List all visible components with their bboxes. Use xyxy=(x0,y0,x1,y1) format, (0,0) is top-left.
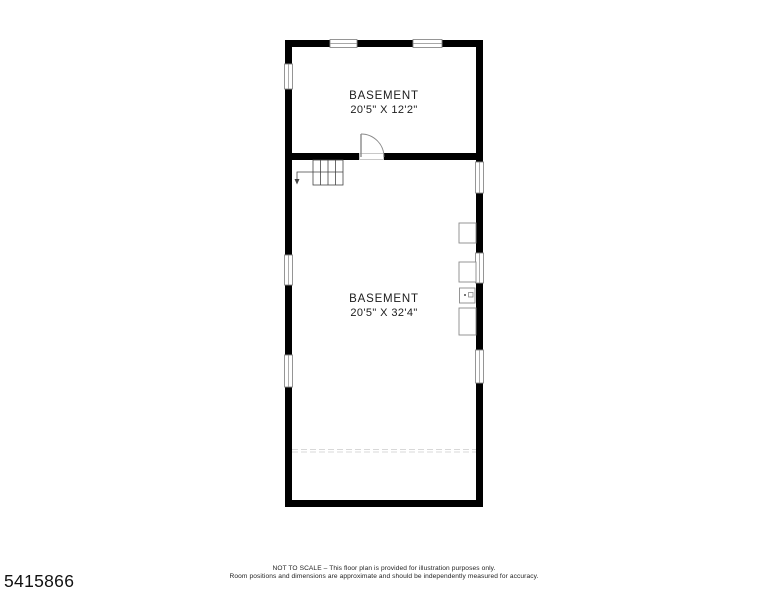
window-icon xyxy=(330,40,357,48)
disclaimer-line-1: NOT TO SCALE – This floor plan is provid… xyxy=(0,565,768,573)
window-icon xyxy=(285,255,293,285)
window-icon xyxy=(413,40,442,48)
window-icon xyxy=(476,350,484,383)
top-wall xyxy=(285,40,483,47)
room-dimensions-basement-upper: 20'5" X 12'2" xyxy=(285,104,483,116)
bottom-wall xyxy=(285,500,483,507)
disclaimer: NOT TO SCALE – This floor plan is provid… xyxy=(0,565,768,580)
window-icon xyxy=(476,253,484,283)
fixture-box-icon xyxy=(459,262,476,282)
dashed-reference-line xyxy=(292,450,476,453)
window-icon xyxy=(285,355,293,387)
room-dimensions-basement-lower: 20'5" X 32'4" xyxy=(285,307,483,319)
room-label-basement-lower: BASEMENT xyxy=(285,293,483,305)
door-icon xyxy=(359,134,384,161)
window-icon xyxy=(476,162,484,193)
window-icon xyxy=(285,64,293,89)
fixture-box-icon xyxy=(459,223,476,243)
stairs-icon xyxy=(295,160,344,185)
disclaimer-line-2: Room positions and dimensions are approx… xyxy=(0,573,768,581)
room-label-basement-upper: BASEMENT xyxy=(285,90,483,102)
